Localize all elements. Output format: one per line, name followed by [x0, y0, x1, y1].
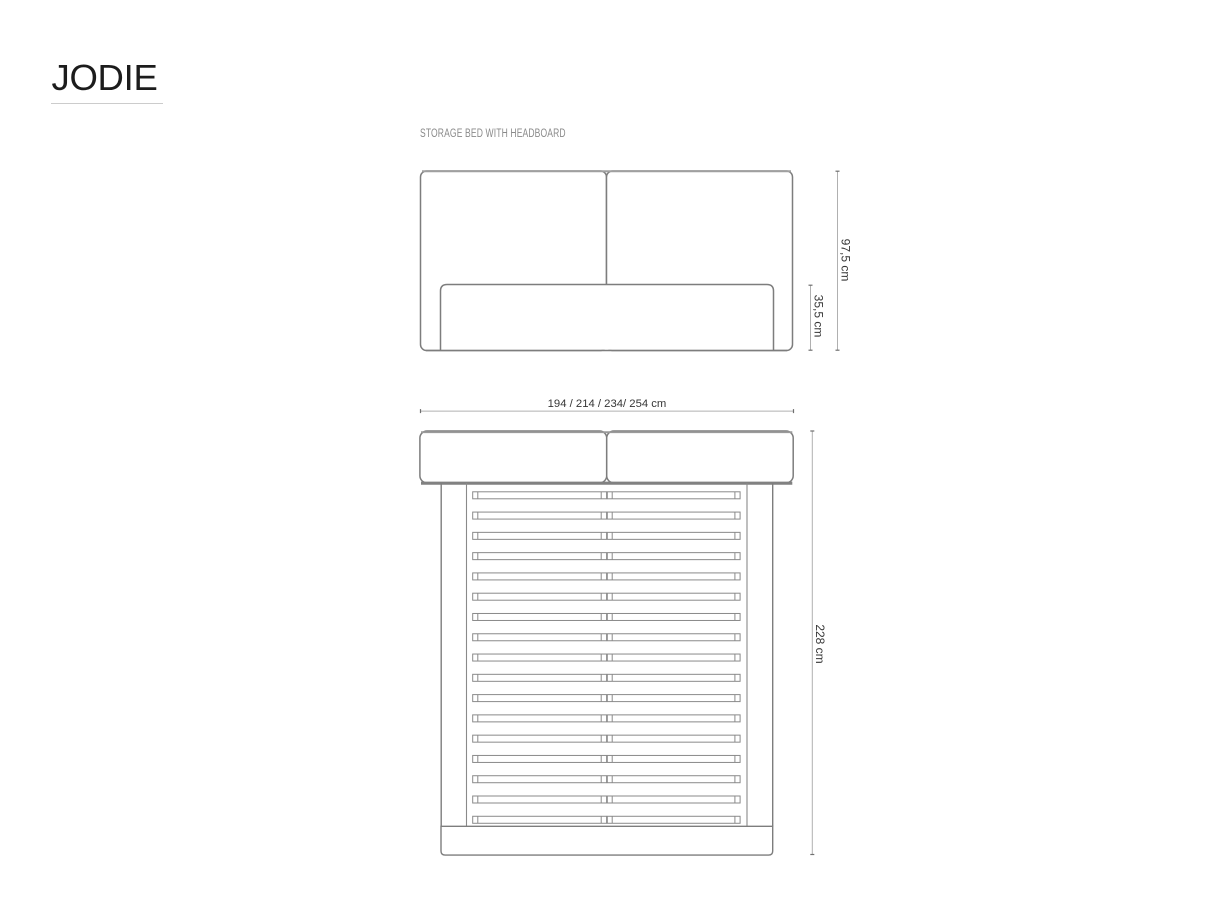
svg-text:35,5 cm: 35,5 cm — [811, 295, 825, 338]
svg-text:194 / 214 / 234/ 254 cm: 194 / 214 / 234/ 254 cm — [548, 398, 667, 410]
svg-text:228 cm: 228 cm — [813, 624, 827, 663]
svg-text:97,5 cm: 97,5 cm — [838, 239, 852, 282]
